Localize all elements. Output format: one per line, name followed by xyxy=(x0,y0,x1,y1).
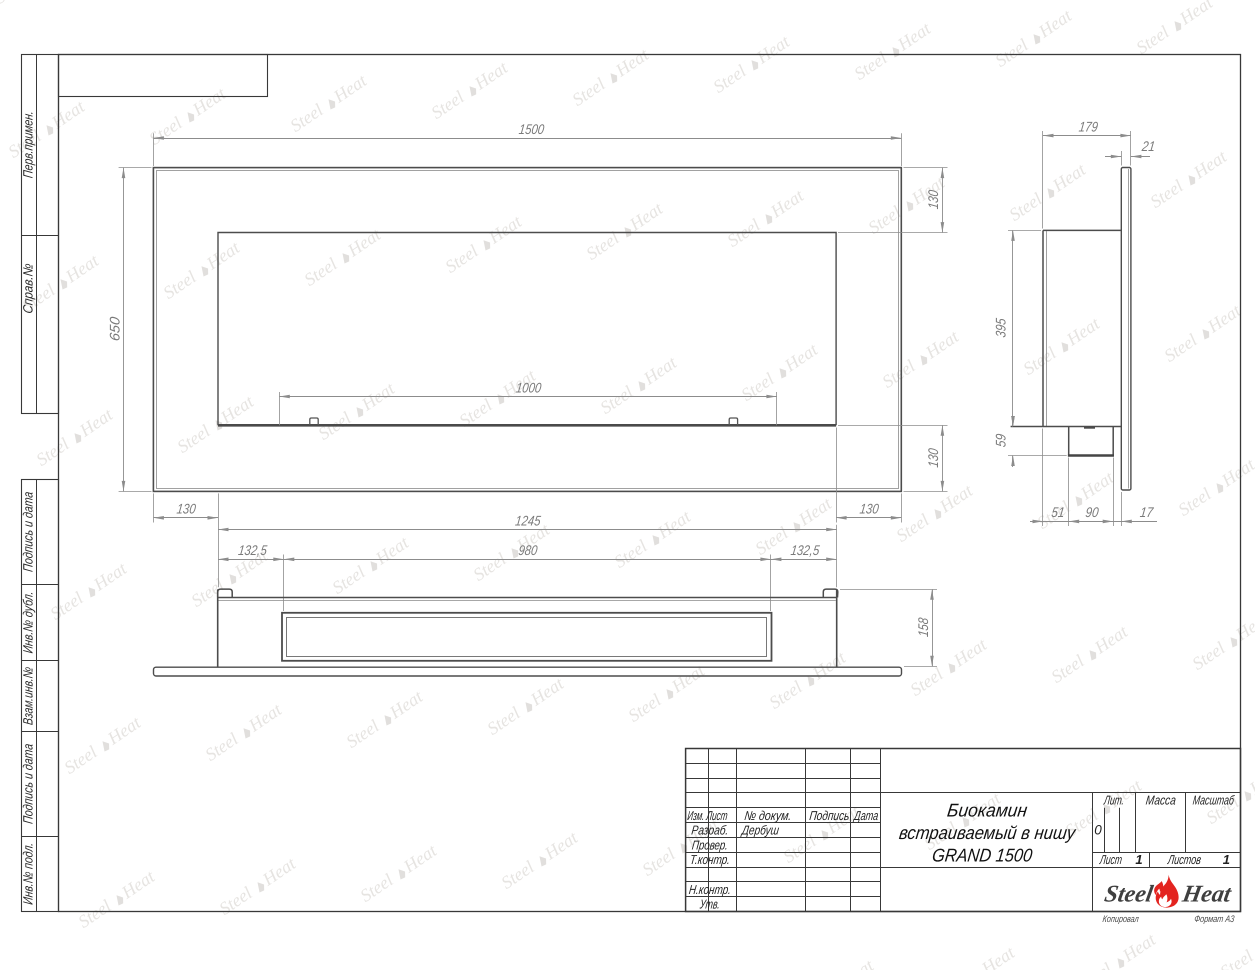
svg-text:980: 980 xyxy=(518,542,539,558)
svg-text:Перв.примен.: Перв.примен. xyxy=(21,110,36,179)
svg-text:Справ.№: Справ.№ xyxy=(21,262,36,314)
svg-text:130: 130 xyxy=(176,501,197,517)
svg-text:51: 51 xyxy=(1051,504,1066,520)
svg-text:130: 130 xyxy=(925,189,941,210)
svg-text:Формат А3: Формат А3 xyxy=(1194,914,1236,925)
svg-text:Биокамин: Биокамин xyxy=(946,800,1029,821)
svg-text:650: 650 xyxy=(106,316,122,342)
svg-text:Дербуш: Дербуш xyxy=(740,823,781,838)
svg-text:Взам.инв.№: Взам.инв.№ xyxy=(21,666,36,726)
svg-text:Инв.№ дубл.: Инв.№ дубл. xyxy=(21,590,36,654)
svg-text:395: 395 xyxy=(993,317,1009,338)
svg-text:90: 90 xyxy=(1085,504,1100,520)
svg-text:Разраб.: Разраб. xyxy=(691,823,730,838)
svg-text:№ докум.: № докум. xyxy=(744,808,793,823)
svg-text:Подпись и дата: Подпись и дата xyxy=(21,742,36,824)
svg-text:встраиваемый в нишу: встраиваемый в нишу xyxy=(898,822,1078,843)
svg-text:Изм.: Изм. xyxy=(687,808,706,823)
svg-text:179: 179 xyxy=(1078,118,1099,134)
svg-text:1: 1 xyxy=(1223,852,1230,867)
svg-text:GRAND 1500: GRAND 1500 xyxy=(931,845,1034,866)
svg-text:Лист: Лист xyxy=(705,808,729,823)
svg-text:Лист: Лист xyxy=(1098,852,1123,867)
svg-text:158: 158 xyxy=(915,617,931,638)
svg-text:130: 130 xyxy=(859,501,880,517)
svg-text:Heat: Heat xyxy=(1179,881,1234,908)
svg-text:130: 130 xyxy=(925,447,941,468)
svg-text:59: 59 xyxy=(993,433,1009,448)
svg-text:Копировал: Копировал xyxy=(1102,914,1140,925)
svg-text:132,5: 132,5 xyxy=(790,542,821,558)
svg-text:0: 0 xyxy=(1094,823,1102,838)
svg-text:Дата: Дата xyxy=(852,808,879,823)
svg-text:1245: 1245 xyxy=(514,512,541,528)
svg-text:1: 1 xyxy=(1135,852,1142,867)
svg-text:Н.контр.: Н.контр. xyxy=(688,882,732,897)
svg-text:Инв.№ подл.: Инв.№ подл. xyxy=(21,842,36,906)
svg-text:Т.контр.: Т.контр. xyxy=(689,852,731,867)
svg-text:Масса: Масса xyxy=(1145,793,1177,808)
svg-text:Лит.: Лит. xyxy=(1103,793,1125,808)
svg-text:Steel: Steel xyxy=(1102,881,1155,908)
svg-text:21: 21 xyxy=(1140,138,1156,154)
svg-text:Утв.: Утв. xyxy=(698,897,721,912)
svg-text:Подпись и дата: Подпись и дата xyxy=(21,490,36,572)
svg-text:Подпись: Подпись xyxy=(809,808,851,823)
svg-text:1000: 1000 xyxy=(515,379,542,395)
svg-text:Масштаб: Масштаб xyxy=(1192,793,1235,808)
svg-text:Провер.: Провер. xyxy=(691,837,729,852)
svg-text:Листов: Листов xyxy=(1166,852,1202,867)
svg-text:132,5: 132,5 xyxy=(237,542,268,558)
svg-text:1500: 1500 xyxy=(518,121,545,137)
